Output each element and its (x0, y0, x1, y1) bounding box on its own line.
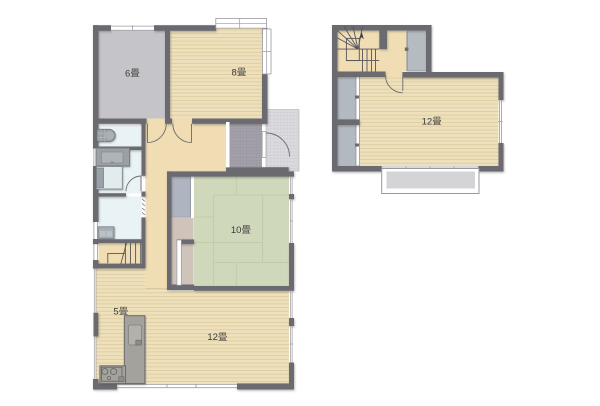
svg-text:12: 12 (207, 332, 218, 343)
svg-text:12: 12 (422, 116, 433, 127)
svg-text:5: 5 (113, 307, 118, 318)
svg-text:10: 10 (231, 225, 242, 236)
svg-text:6: 6 (125, 68, 130, 79)
svg-text:8: 8 (232, 67, 237, 78)
